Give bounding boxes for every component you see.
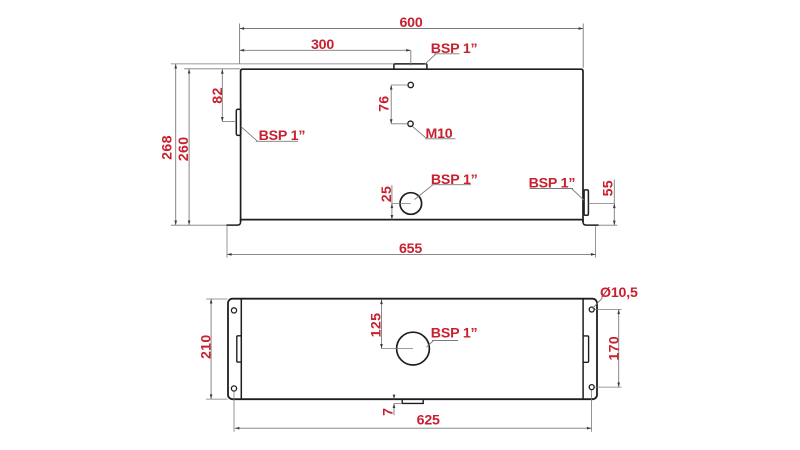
svg-text:82: 82 (210, 87, 226, 103)
svg-text:210: 210 (199, 334, 215, 359)
svg-text:55: 55 (600, 180, 616, 196)
svg-text:BSP 1”: BSP 1” (431, 172, 478, 188)
svg-text:625: 625 (417, 413, 440, 429)
svg-text:600: 600 (399, 15, 422, 31)
svg-text:170: 170 (606, 336, 622, 361)
svg-text:260: 260 (176, 137, 192, 162)
svg-text:BSP 1”: BSP 1” (431, 41, 478, 57)
svg-text:76: 76 (377, 95, 393, 111)
svg-text:M10: M10 (426, 126, 453, 142)
svg-text:7: 7 (380, 408, 396, 416)
svg-text:Ø10,5: Ø10,5 (600, 285, 638, 301)
svg-text:BSP 1”: BSP 1” (431, 325, 478, 341)
svg-text:125: 125 (368, 313, 384, 338)
svg-text:300: 300 (311, 37, 334, 53)
svg-text:655: 655 (399, 241, 422, 257)
svg-text:268: 268 (160, 135, 176, 160)
svg-text:BSP 1”: BSP 1” (259, 128, 306, 144)
svg-text:BSP 1”: BSP 1” (529, 176, 576, 192)
svg-text:25: 25 (379, 186, 395, 202)
